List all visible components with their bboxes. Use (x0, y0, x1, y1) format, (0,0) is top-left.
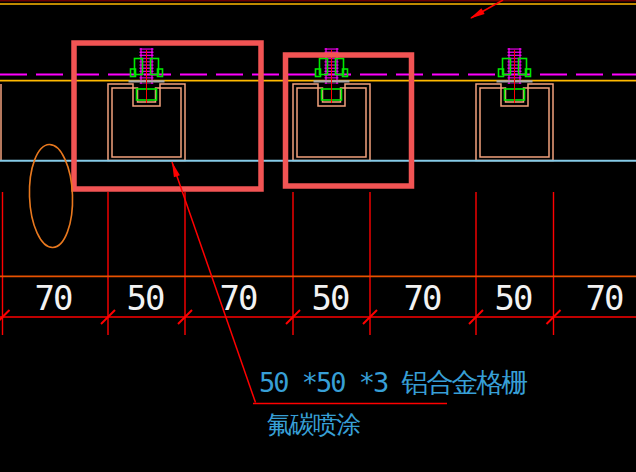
grille-spec-note: 50 *50 *3 铝合金格栅 (259, 367, 528, 398)
leader-arrow-top-right (470, 0, 503, 19)
highlight-box-1 (74, 43, 261, 189)
fastener-assembly-1 (129, 48, 165, 103)
revision-cloud (28, 144, 75, 248)
cad-drawing-canvas[interactable]: 70 50 70 50 70 50 70 50 *50 *3 铝合金格栅 氟碳喷… (0, 0, 636, 472)
dimension-extension-lines (3, 192, 554, 335)
dimension-label: 70 (35, 278, 72, 318)
dimension-label: 70 (220, 278, 257, 318)
dimension-label: 50 (495, 278, 532, 318)
dimension-label: 50 (127, 278, 164, 318)
dimension-label: 70 (586, 278, 623, 318)
coating-note: 氟碳喷涂 (267, 410, 361, 439)
dimension-label: 70 (404, 278, 441, 318)
dimension-label: 50 (312, 278, 349, 318)
fastener-assembly-3 (497, 48, 533, 103)
